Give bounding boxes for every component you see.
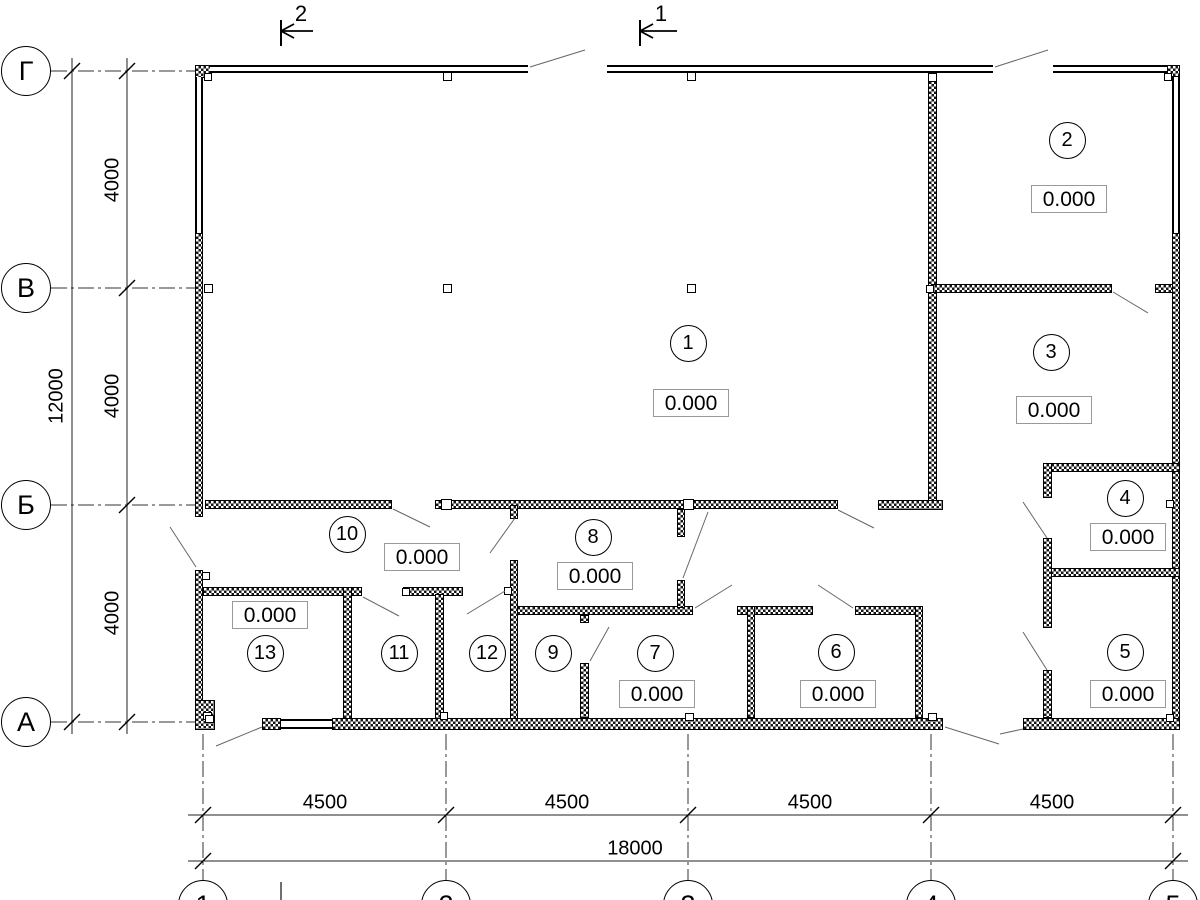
- elevation-box-room-13: 0.000: [232, 601, 308, 629]
- dimension-label: 4500: [786, 792, 835, 815]
- door-leader-line: [363, 597, 399, 616]
- dimension-label: 4000: [102, 156, 125, 205]
- elevation-box-room-6: 0.000: [800, 680, 876, 708]
- linework-layer: [0, 0, 1200, 900]
- door-leader-line: [1113, 292, 1148, 313]
- room-marker-8: 8: [575, 519, 612, 556]
- elevation-box-room-7: 0.000: [619, 680, 695, 708]
- room-marker-11: 11: [381, 635, 418, 672]
- room-marker-10: 10: [329, 516, 366, 553]
- dimension-label: 18000: [605, 838, 665, 861]
- door-leader-line: [1023, 502, 1047, 538]
- door-leader-line: [393, 509, 430, 527]
- room-marker-3: 3: [1033, 334, 1070, 371]
- section-mark-label-2: 2: [295, 1, 307, 27]
- elevation-box-room-2: 0.000: [1031, 185, 1107, 213]
- door-leader-line: [1000, 729, 1023, 734]
- door-leader-line: [838, 510, 874, 528]
- door-leader-line: [530, 50, 585, 67]
- room-marker-9: 9: [535, 635, 572, 672]
- door-leader-line: [590, 627, 609, 661]
- dimension-label: 12000: [46, 366, 69, 426]
- axis-bubble-Г: Г: [1, 46, 51, 96]
- section-mark-label-1: 1: [655, 1, 667, 27]
- door-leader-line: [1023, 632, 1047, 670]
- section-mark-arrow: [640, 31, 653, 38]
- door-leader-line: [467, 591, 505, 614]
- elevation-box-room-10: 0.000: [384, 543, 460, 571]
- axis-bubble-Б: Б: [1, 480, 51, 530]
- door-leader-line: [995, 50, 1048, 67]
- door-leader-line: [170, 527, 196, 567]
- elevation-box-room-8: 0.000: [557, 562, 633, 590]
- room-marker-1: 1: [670, 325, 707, 362]
- door-leader-line: [695, 585, 732, 608]
- dimension-label: 4500: [301, 792, 350, 815]
- section-mark-arrow: [281, 31, 294, 38]
- floor-plan-canvas: 21ГВБА1234540004000400012000450045004500…: [0, 0, 1200, 900]
- room-marker-7: 7: [637, 635, 674, 672]
- elevation-box-room-5: 0.000: [1090, 680, 1166, 708]
- room-marker-12: 12: [469, 635, 506, 672]
- room-marker-2: 2: [1049, 122, 1086, 159]
- elevation-box-room-4: 0.000: [1090, 523, 1166, 551]
- door-leader-line: [945, 727, 999, 744]
- dimension-label: 4000: [102, 372, 125, 421]
- door-leader-line: [216, 727, 262, 746]
- dimension-label: 4500: [1028, 792, 1077, 815]
- elevation-box-room-3: 0.000: [1016, 396, 1092, 424]
- room-marker-5: 5: [1107, 634, 1144, 671]
- door-leader-line: [818, 585, 853, 608]
- axis-bubble-А: А: [1, 697, 51, 747]
- room-marker-13: 13: [247, 635, 284, 672]
- section-mark-arrow: [281, 24, 294, 31]
- door-leader-line: [683, 512, 708, 578]
- room-marker-6: 6: [818, 634, 855, 671]
- section-mark-arrow: [640, 24, 653, 31]
- room-marker-4: 4: [1107, 480, 1144, 517]
- dimension-label: 4500: [543, 792, 592, 815]
- axis-bubble-В: В: [1, 263, 51, 313]
- door-leader-line: [490, 518, 515, 553]
- dimension-label: 4000: [102, 589, 125, 638]
- elevation-box-room-1: 0.000: [653, 389, 729, 417]
